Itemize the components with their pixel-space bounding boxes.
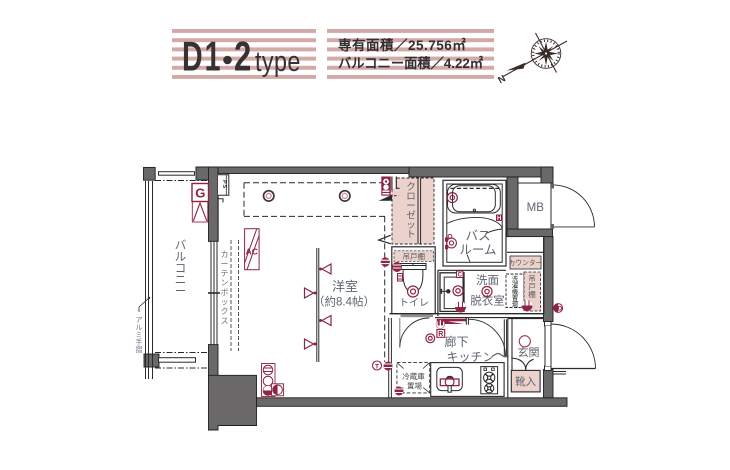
svg-text:吊戸棚: 吊戸棚 [403, 251, 426, 261]
svg-text:H: H [497, 216, 501, 222]
svg-text:アルミ手摺: アルミ手摺 [136, 316, 143, 354]
svg-text:D: D [558, 306, 563, 313]
svg-text:PS: PS [221, 180, 227, 189]
svg-text:ルーム: ルーム [459, 243, 496, 257]
svg-text:吊戸棚: 吊戸棚 [528, 274, 536, 299]
svg-text:R: R [438, 331, 443, 338]
svg-text:キッチン: キッチン [446, 350, 494, 364]
svg-text:専有面積／25.756㎡: 専有面積／25.756㎡ [338, 37, 466, 53]
svg-text:MB: MB [527, 202, 545, 214]
svg-text:バス: バス [465, 229, 490, 243]
svg-text:玄関: 玄関 [518, 345, 540, 359]
svg-text:C: C [458, 273, 463, 279]
svg-text:バルコニー: バルコニー [175, 239, 187, 298]
svg-text:洋室: 洋室 [332, 279, 358, 294]
svg-text:カーテンボックス: カーテンボックス [221, 250, 229, 326]
svg-text:クローゼット: クローゼット [406, 182, 416, 241]
svg-text:T: T [375, 364, 379, 371]
svg-text:G: G [195, 186, 205, 201]
svg-text:カウンター: カウンター [509, 258, 543, 267]
svg-text:（約8.4帖）: （約8.4帖） [313, 295, 375, 309]
svg-text:トイレ: トイレ [399, 298, 429, 309]
svg-text:AC: AC [246, 247, 258, 257]
svg-text:type: type [255, 45, 301, 78]
svg-text:バルコニー面積／4.22㎡: バルコニー面積／4.22㎡ [338, 55, 484, 71]
svg-text:冷蔵庫: 冷蔵庫 [402, 371, 425, 381]
svg-text:2: 2 [234, 33, 251, 80]
svg-text:靴入: 靴入 [515, 375, 536, 388]
svg-text:置場: 置場 [407, 381, 422, 391]
svg-text:脱衣室: 脱衣室 [470, 294, 505, 308]
svg-text:廊下: 廊下 [444, 334, 468, 349]
svg-text:D1: D1 [182, 32, 223, 80]
svg-text:洗濯機置場: 洗濯機置場 [512, 274, 519, 309]
svg-text:洗面: 洗面 [476, 274, 499, 287]
